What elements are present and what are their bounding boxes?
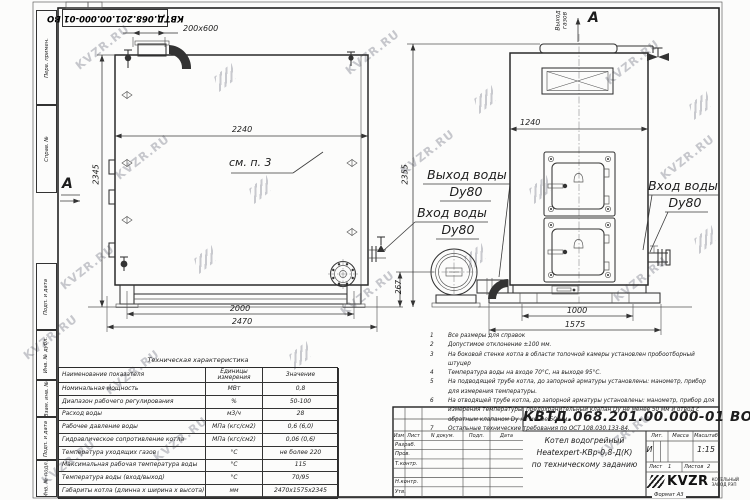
view-mark-a-right: А [588,11,599,26]
drain-valve-icon [120,257,128,271]
row-tkontr: Т.контр. [395,461,417,467]
margin-box-label: Подп. и дата [44,278,50,314]
dim-base-width: 1575 [545,321,605,330]
tech-table-cell: °С [206,460,263,473]
side-pipe-valve [368,237,386,262]
dim-height: 2345 [93,157,102,191]
dim-total-length: 2470 [212,318,272,327]
margin-box-label: Подп. и дата [44,420,50,456]
lit-header: Лит. [646,433,668,439]
note-item: 4Температура воды на входе 70°С, на выхо… [430,369,718,378]
margin-box: Подп. и дата [36,417,57,460]
flue-elbow [169,45,191,69]
note-number: 2 [430,341,448,350]
inlet-label-line2: Dy80 [433,223,483,237]
tech-table-title: Техническая характеристика [58,357,338,364]
note-item: 5На подводящей трубе котла, до запорной … [430,378,718,397]
product-name-line1: Котел водогрейный [525,436,644,445]
tech-table-cell: 0,06 (0,6) [263,434,339,447]
logo-text: KVZR [667,474,709,489]
note-item: 2Допустимое отклонение ±100 мм. [430,341,718,350]
row-prov: Пров. [395,451,410,457]
sheets-label: Листов [684,464,703,470]
tech-table: Наименование показателяЕдиницы измерения… [58,367,338,499]
dim-width: 1240 [520,119,540,128]
col-izm: Изм [393,433,405,439]
tech-table-cell: 0,6 (6,0) [263,421,339,434]
margin-box: Взам. инв. № [36,380,57,417]
product-name-line2: Heatexpert-КВр-0,8-Д(К) [525,448,644,457]
margin-box: Подп. и дата [36,263,57,330]
sheet-label: Лист [649,464,662,470]
sheet-value: 1 [668,464,671,470]
note-number: 5 [430,378,448,397]
tech-table-cell: Значение [263,368,339,383]
note-number: 3 [430,351,448,370]
note-text: Все размеры для справок [448,332,718,341]
margin-box-label: Инв. № дубл. [44,337,50,373]
product-name-line3: по техническому заданию [525,460,644,469]
inlet-label-line1: Вход воды [413,206,491,220]
col-podp: Подп. [463,433,490,439]
title-block-doc-number: КВТД.068.201.00.000-01 ВО [523,409,719,425]
tech-table-cell: МВт [206,383,263,396]
margin-box-label: Перв. примен. [44,38,50,78]
tech-table-cell: Гидравлическое сопротивление котла [59,434,206,447]
margin-box-label: Инв. № подл. [44,460,50,497]
top-stamp-box: КВТД.068.201.00.000-01 ВО [62,9,168,27]
tech-table-cell: Рабочее давление воды [59,421,206,434]
tech-table-cell: Наименование показателя [59,368,206,383]
dim-legs-span: 2000 [210,305,270,314]
note-item: 1Все размеры для справок [430,332,718,341]
tech-table-cell: мм [206,485,263,498]
tech-table-cell: 50-100 [263,396,339,409]
tech-table-cell: 2470х1575х2345 [263,485,339,498]
margin-box: Инв. № подл. [36,460,57,497]
tech-table-cell: Номинальная мощность [59,383,206,396]
tech-table-cell: 70/95 [263,472,339,485]
logo-sub2: ЗАВОД РЭП [712,482,739,487]
margin-box: Инв. № дубл. [36,330,57,380]
dim-legs-span-front: 1000 [547,307,607,316]
note-text: Температура воды на входе 70°С, на выход… [448,369,718,378]
mass-header: Масса [668,433,693,439]
left-view-linework [60,33,434,332]
format-note: Формат А3 [652,492,686,498]
dim-axis-height: 267 [395,273,403,301]
inlet-right-label-line2: Dy80 [661,196,709,210]
outlet-label-line2: Dy80 [438,185,494,199]
air-vent-icon [347,52,355,66]
tech-table-cell: 0,8 [263,383,339,396]
tech-table-cell: Габариты котла (длинна х ширина х высота… [59,485,206,498]
callout-see-note-3: см. п. 3 [229,157,272,169]
tech-table-cell: Диапазон рабочего регулирования [59,396,206,409]
tech-table-cell: МПа (кгс/см2) [206,434,263,447]
col-ndokum: N докум. [422,433,463,439]
note-text: На боковой стенке котла в области топочн… [448,351,718,370]
logo-hatch-icon [647,475,667,488]
tech-table-cell: % [206,396,263,409]
tech-table-cell: 28 [263,409,339,422]
margin-box: Справ. № [36,105,57,193]
tech-table-cell: Единицы измерения [206,368,263,383]
row-utv: Утв. [395,489,406,495]
note-text: Допустимое отклонение ±100 мм. [448,341,718,350]
tech-table-cell: Максимальная рабочая температура воды [59,460,206,473]
tech-table-cell: °С [206,472,263,485]
gas-outlet-label: Выход газов [556,8,569,34]
margin-box: Перв. примен. [36,10,57,105]
note-item: 3На боковой стенке котла в области топоч… [430,351,718,370]
note-number: 1 [430,332,448,341]
note-text: На подводящей трубе котла, до запорной а… [448,378,718,397]
upper-door [544,152,615,216]
tech-table-cell: м3/ч [206,409,263,422]
dim-shell-length: 2240 [212,126,272,135]
tech-table-cell: 115 [263,460,339,473]
lower-door [544,218,615,282]
margin-box-label: Справ. № [44,136,50,162]
tech-table-cell: не более 220 [263,447,339,460]
row-razrab: Разраб. [395,442,415,448]
tech-table-cell: Расход воды [59,409,206,422]
vent-valve-icon [647,48,669,61]
margin-box-label: Взам. инв. № [44,381,50,417]
note-number: 4 [430,369,448,378]
note-number: 6 [430,397,448,425]
dim-total-height: 2355 [402,156,411,192]
outlet-elbow [488,279,508,299]
row-nkontr: Н.контр. [395,479,418,485]
sheets-value: 2 [707,464,710,470]
tech-table-cell: МПа (кгс/см2) [206,421,263,434]
company-logo: KVZR КОТЕЛЬНЫЙ ЗАВОД РЭП [649,474,739,489]
col-data: Дата [490,433,523,439]
tech-table-cell: Температура уходящих газов [59,447,206,460]
scale-header: Масштаб [693,433,719,439]
top-stamp-number: КВТД.068.201.00.000-01 ВО [47,13,184,23]
outlet-label-line1: Выход воды [421,168,513,182]
section-mark-a-left: А [62,177,73,192]
dim-duct-size: 200x600 [183,25,218,34]
inlet-right-label-line1: Вход воды [646,179,720,193]
col-list: Лист [405,433,422,439]
lit-value: И [645,445,654,454]
safety-valve-icon [124,50,132,68]
drawing-sheet: KVZR.RUKVZR.RUKVZR.RUKVZR.RUKVZR.RUKVZR.… [0,0,750,500]
tech-table-cell: Температура воды (вход/выход) [59,472,206,485]
tech-table-cell: °С [206,447,263,460]
scale-value: 1:15 [693,445,719,454]
